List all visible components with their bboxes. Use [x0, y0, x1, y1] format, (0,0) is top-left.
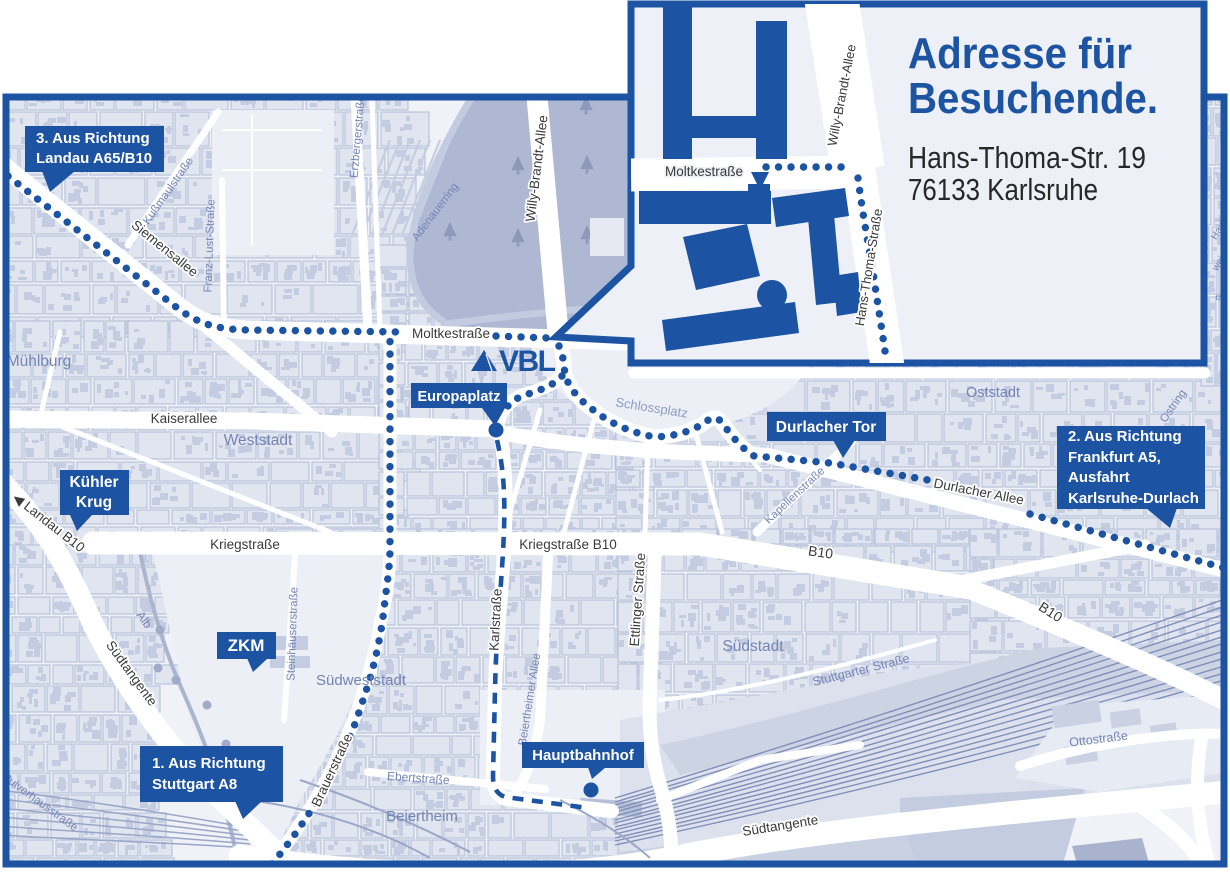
svg-text:Durlacher Tor: Durlacher Tor: [776, 419, 877, 436]
svg-text:Besuchende.: Besuchende.: [908, 74, 1158, 123]
svg-text:Moltkestraße: Moltkestraße: [412, 326, 490, 341]
svg-text:Hauptbahnhof: Hauptbahnhof: [532, 747, 635, 764]
svg-text:Landau A65/B10: Landau A65/B10: [36, 150, 152, 167]
svg-text:Frankfurt A5,: Frankfurt A5,: [1068, 449, 1161, 466]
svg-text:Kriegstraße B10: Kriegstraße B10: [519, 537, 617, 552]
svg-text:Europaplatz: Europaplatz: [418, 389, 501, 405]
svg-text:2. Aus Richtung: 2. Aus Richtung: [1068, 428, 1182, 445]
svg-text:Krug: Krug: [76, 494, 112, 511]
svg-text:3. Aus Richtung: 3. Aus Richtung: [36, 130, 150, 147]
svg-text:Kriegstraße: Kriegstraße: [210, 537, 280, 552]
svg-text:Beiertheim: Beiertheim: [386, 808, 458, 825]
svg-text:Südstadt: Südstadt: [722, 638, 784, 655]
svg-text:Adresse für: Adresse für: [908, 29, 1132, 78]
svg-text:Mühlburg: Mühlburg: [7, 353, 72, 370]
svg-text:Hans-Thoma-Str. 19: Hans-Thoma-Str. 19: [908, 140, 1146, 175]
svg-text:VBL: VBL: [499, 345, 556, 378]
svg-text:Kühler: Kühler: [69, 474, 118, 491]
svg-text:Moltkestraße: Moltkestraße: [665, 164, 743, 179]
svg-text:Stuttgart A8: Stuttgart A8: [152, 776, 237, 793]
svg-text:1. Aus Richtung: 1. Aus Richtung: [152, 755, 266, 772]
svg-text:Weststadt: Weststadt: [224, 432, 293, 449]
svg-text:Karlsruhe-Durlach: Karlsruhe-Durlach: [1068, 490, 1199, 507]
svg-text:ZKM: ZKM: [228, 636, 265, 655]
svg-text:Kaiserallee: Kaiserallee: [151, 411, 218, 426]
svg-text:Südweststadt: Südweststadt: [316, 672, 407, 689]
svg-text:Oststadt: Oststadt: [966, 385, 1020, 401]
svg-text:76133 Karlsruhe: 76133 Karlsruhe: [908, 172, 1098, 207]
svg-text:Ausfahrt: Ausfahrt: [1068, 469, 1130, 486]
